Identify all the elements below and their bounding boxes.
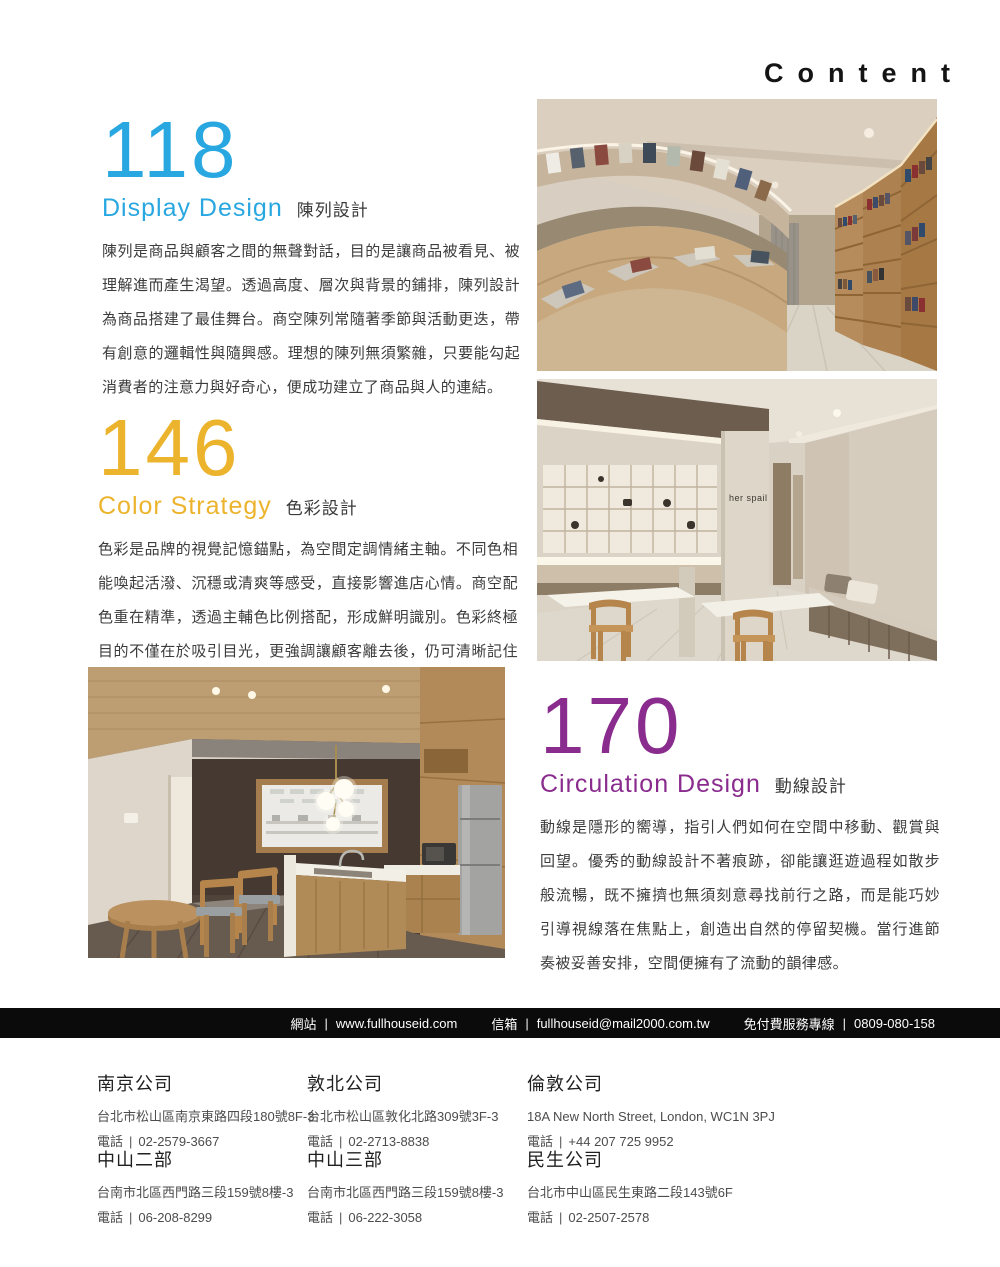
office-card-london: 倫敦公司 18A New North Street, London, WC1N …: [527, 1070, 807, 1154]
section-title-zh: 色彩設計: [286, 494, 358, 519]
page-number-170: 170: [540, 686, 940, 766]
section-description: 陳列是商品與顧客之間的無聲對話，目的是讓商品被看見、被理解進而產生渴望。透過高度…: [102, 235, 520, 405]
office-address: 台南市北區西門路三段159號8樓-3: [97, 1180, 327, 1205]
office-address: 台南市北區西門路三段159號8樓-3: [307, 1180, 537, 1205]
email-label: 信箱: [491, 1014, 517, 1033]
kitchen-photo: [88, 667, 505, 958]
page-number-118: 118: [102, 110, 520, 190]
kitchen-illustration: [88, 667, 505, 958]
toc-entry-display-design: 118 Display Design 陳列設計 陳列是商品與顧客之間的無聲對話，…: [102, 110, 520, 405]
office-name: 敦北公司: [307, 1070, 537, 1096]
office-name: 民生公司: [527, 1146, 807, 1172]
office-address: 台北市松山區南京東路四段180號8F-3: [97, 1104, 327, 1129]
office-phone: 電話|02-2507-2578: [527, 1205, 807, 1230]
phone-number: 06-208-8299: [138, 1210, 212, 1225]
office-name: 中山二部: [97, 1146, 327, 1172]
section-title-row: Circulation Design 動線設計: [540, 770, 940, 799]
website-url: www.fullhouseid.com: [336, 1016, 457, 1031]
phone-label: 電話: [97, 1210, 123, 1225]
section-title-zh: 動線設計: [775, 772, 847, 797]
section-title-en: Display Design: [102, 194, 283, 223]
office-name: 中山三部: [307, 1146, 537, 1172]
section-title-row: Display Design 陳列設計: [102, 194, 520, 223]
separator: |: [339, 1210, 342, 1225]
wall-sign-text: her spail: [729, 493, 768, 503]
hotline-group: 免付費服務專線 | 0809-080-158: [744, 1014, 935, 1033]
section-title-en: Color Strategy: [98, 492, 272, 521]
office-address: 台北市中山區民生東路二段143號6F: [527, 1180, 807, 1205]
bookstore-photo: [537, 99, 937, 371]
email-group: 信箱 | fullhouseid@mail2000.com.tw: [491, 1014, 709, 1033]
office-address: 台北市松山區敦化北路309號3F-3: [307, 1104, 537, 1129]
spa-lounge-illustration: her spail: [537, 379, 937, 661]
website-label: 網站: [291, 1014, 317, 1033]
separator: |: [325, 1016, 328, 1031]
separator: |: [129, 1210, 132, 1225]
separator: |: [525, 1016, 528, 1031]
phone-label: 電話: [307, 1210, 333, 1225]
section-title-en: Circulation Design: [540, 770, 761, 799]
separator: |: [843, 1016, 846, 1031]
office-card-zhongshan-2: 中山二部 台南市北區西門路三段159號8樓-3 電話|06-208-8299: [97, 1146, 327, 1230]
section-description: 動線是隱形的嚮導，指引人們如何在空間中移動、觀賞與回望。優秀的動線設計不著痕跡，…: [540, 811, 940, 981]
contact-bar: 網站 | www.fullhouseid.com 信箱 | fullhousei…: [0, 1008, 1000, 1038]
spa-lounge-photo: her spail: [537, 379, 937, 661]
hotline-label: 免付費服務專線: [744, 1014, 835, 1033]
office-card-minsheng: 民生公司 台北市中山區民生東路二段143號6F 電話|02-2507-2578: [527, 1146, 807, 1230]
phone-number: 06-222-3058: [348, 1210, 422, 1225]
office-card-dunbei: 敦北公司 台北市松山區敦化北路309號3F-3 電話|02-2713-8838: [307, 1070, 537, 1154]
hotline-number: 0809-080-158: [854, 1016, 935, 1031]
separator: |: [559, 1210, 562, 1225]
office-card-nanjing: 南京公司 台北市松山區南京東路四段180號8F-3 電話|02-2579-366…: [97, 1070, 327, 1154]
office-phone: 電話|06-208-8299: [97, 1205, 327, 1230]
toc-entry-circulation-design: 170 Circulation Design 動線設計 動線是隱形的嚮導，指引人…: [540, 686, 940, 981]
office-card-zhongshan-3: 中山三部 台南市北區西門路三段159號8樓-3 電話|06-222-3058: [307, 1146, 537, 1230]
section-title-zh: 陳列設計: [297, 196, 369, 221]
bookstore-illustration: [537, 99, 937, 371]
section-title-row: Color Strategy 色彩設計: [98, 492, 518, 521]
office-name: 倫敦公司: [527, 1070, 807, 1096]
phone-number: 02-2507-2578: [568, 1210, 649, 1225]
website-group: 網站 | www.fullhouseid.com: [291, 1014, 458, 1033]
office-address: 18A New North Street, London, WC1N 3PJ: [527, 1104, 807, 1129]
page-title: Content: [764, 58, 964, 89]
email-address: fullhouseid@mail2000.com.tw: [537, 1016, 710, 1031]
office-name: 南京公司: [97, 1070, 327, 1096]
toc-entry-color-strategy: 146 Color Strategy 色彩設計 色彩是品牌的視覺記憶錨點，為空間…: [98, 408, 518, 703]
phone-label: 電話: [527, 1210, 553, 1225]
magazine-contents-page: Content 118 Display Design 陳列設計 陳列是商品與顧客…: [0, 0, 1000, 1267]
page-number-146: 146: [98, 408, 518, 488]
office-phone: 電話|06-222-3058: [307, 1205, 537, 1230]
